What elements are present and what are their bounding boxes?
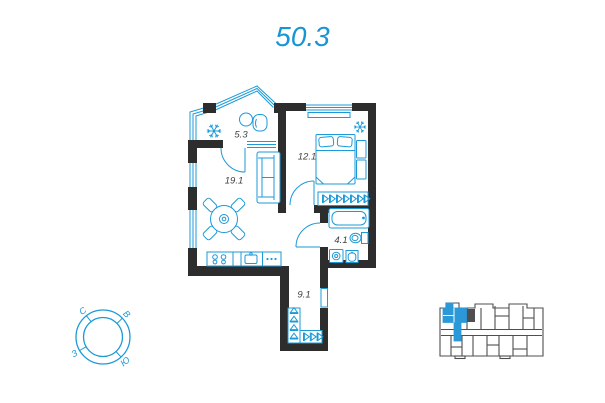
wardrobe-hangers [318, 192, 370, 206]
cabinet-dots-icon [266, 258, 276, 260]
room-area-label-balcony: 5.3 [234, 130, 248, 141]
room-area-label-living: 19.1 [225, 176, 244, 187]
bathroom-sink [346, 251, 358, 263]
washing-machine [330, 250, 344, 263]
compass-rose: С В З Ю [70, 305, 133, 369]
bedroom-window [306, 105, 352, 118]
minimap-stair-core [467, 309, 475, 322]
kitchen-counter [207, 252, 281, 266]
room-balcony: 5.3 [207, 113, 267, 141]
bed [316, 135, 355, 185]
room-area-label-bathroom: 4.1 [334, 235, 347, 246]
ac-snowflake-icon [354, 121, 366, 133]
room-living-kitchen: 19.1 [202, 152, 281, 266]
toilet [350, 233, 368, 244]
dining-table [202, 197, 246, 241]
nightstands [357, 141, 367, 180]
hall-wardrobe-hangers [288, 308, 323, 343]
floor-minimap [440, 303, 543, 359]
sofa [257, 152, 280, 203]
room-bedroom: 12.1 [298, 121, 370, 206]
floor-plan: 5.3 [188, 86, 376, 351]
bathroom-door [296, 223, 320, 247]
room-area-label-bedroom: 12.1 [298, 152, 317, 163]
balcony-table [240, 113, 253, 126]
bedroom-door [290, 181, 314, 205]
room-hallway: 9.1 [288, 290, 323, 344]
balcony-door [221, 148, 245, 172]
balcony-chair [253, 115, 267, 132]
ac-snowflake-icon [207, 124, 221, 138]
room-area-label-hallway: 9.1 [297, 290, 310, 301]
room-bathroom: 4.1 [329, 209, 369, 263]
apartment-plan-page: 50.3 [0, 0, 605, 403]
floor-plan-canvas: 5.3 [0, 0, 605, 403]
compass-west-label: З [70, 348, 80, 360]
entrance-door [321, 289, 328, 308]
bathtub [329, 209, 369, 229]
